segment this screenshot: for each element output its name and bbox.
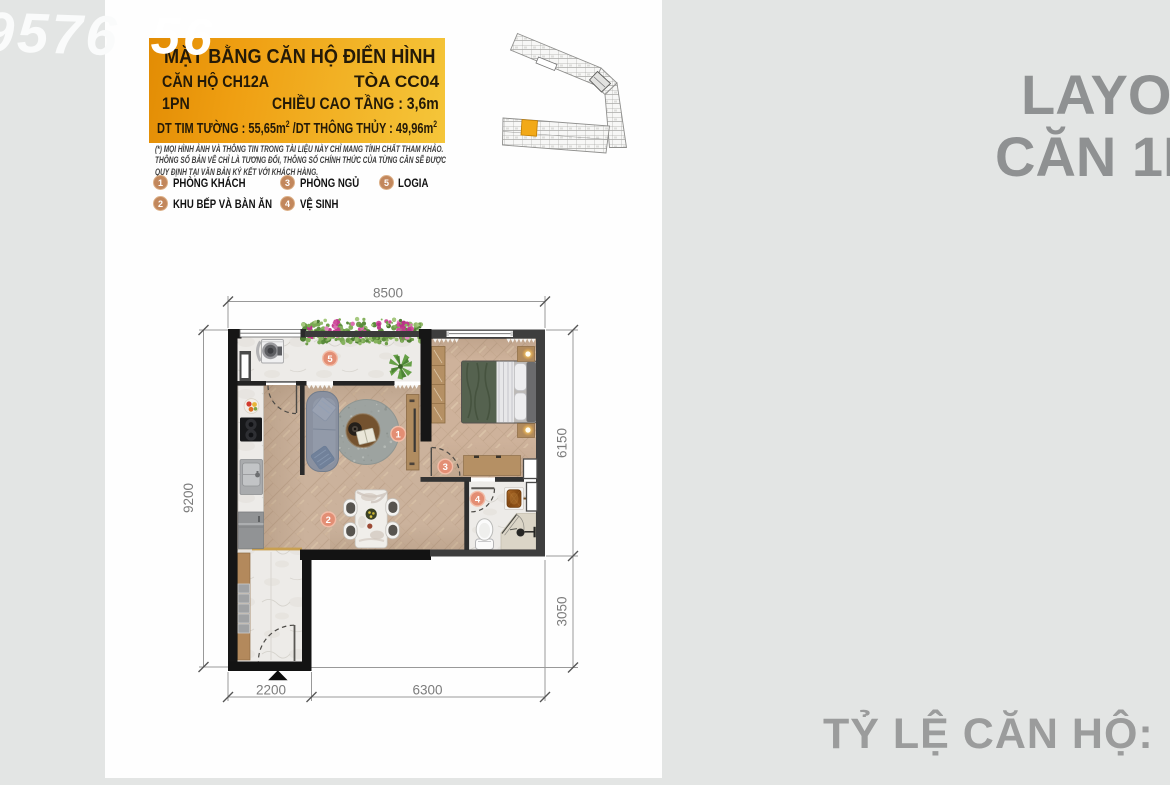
svg-text:1: 1 [396, 430, 402, 441]
svg-text:9200: 9200 [181, 483, 196, 513]
svg-text:5: 5 [327, 354, 333, 365]
svg-text:6150: 6150 [555, 428, 570, 458]
svg-text:3: 3 [443, 462, 448, 473]
svg-text:2: 2 [326, 515, 331, 526]
svg-text:8500: 8500 [373, 286, 403, 301]
svg-text:6300: 6300 [412, 683, 442, 698]
svg-text:2200: 2200 [256, 683, 286, 698]
svg-text:4: 4 [475, 494, 481, 505]
svg-text:3050: 3050 [555, 596, 570, 626]
